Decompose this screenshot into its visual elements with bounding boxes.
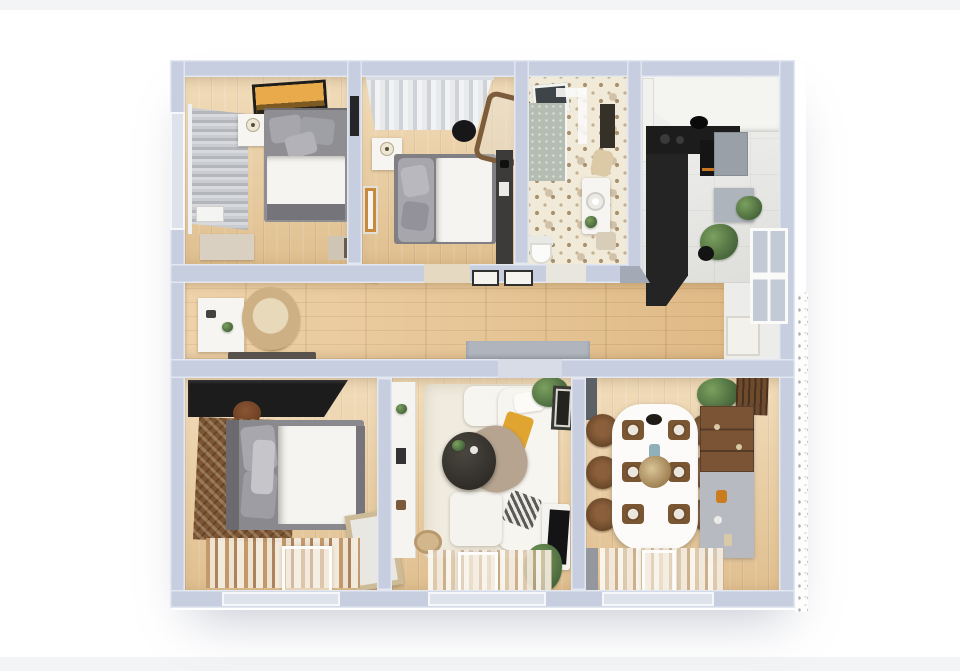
sofa-ottoman [450, 492, 502, 546]
bed-duvet [278, 426, 356, 524]
cooking-pot [690, 116, 708, 129]
refrigerator [714, 132, 748, 176]
interior-wall-bathroom-left [514, 60, 529, 264]
decor-candle [714, 516, 722, 524]
place-setting [668, 462, 690, 482]
bottom-frame-band [0, 657, 960, 671]
hall-sideboard [198, 298, 244, 352]
wall-frame [472, 270, 499, 286]
dresser [200, 234, 254, 260]
bed-footer [267, 204, 345, 220]
round-coffee-table [442, 432, 496, 490]
window [750, 228, 788, 324]
black-pouf [452, 120, 476, 142]
window-left-wall [170, 112, 185, 230]
kitchen-counter-side [646, 154, 688, 306]
shelf-item [396, 500, 406, 510]
toilet [530, 243, 552, 264]
doorway [546, 264, 586, 283]
shower-glass-wall [578, 88, 587, 144]
table-lamp [246, 118, 260, 132]
exterior-wall-top [170, 60, 795, 77]
interior-wall-living-left [377, 378, 392, 590]
exterior-wall-right [779, 60, 795, 608]
entry-door [498, 359, 562, 378]
desk-paper [499, 182, 509, 196]
burner [676, 136, 684, 144]
interior-wall-kitchen-left [627, 60, 642, 283]
window-bottom-wall [602, 592, 714, 606]
black-wardrobe [188, 380, 348, 417]
window-bottom-wall [428, 592, 546, 606]
table-cup [470, 446, 478, 454]
drawer-knob [736, 444, 742, 450]
plant-pot [698, 246, 714, 261]
wall-edge [586, 548, 598, 590]
bed-headboard [226, 420, 239, 530]
place-setting [668, 504, 690, 524]
sideboard-drawers [700, 406, 754, 472]
wall-frame [504, 270, 533, 286]
sideboard-decor [206, 310, 216, 318]
gray-doormat [466, 341, 590, 360]
table-lamp [380, 142, 394, 156]
place-setting [668, 420, 690, 440]
doorway [424, 264, 470, 283]
top-frame-band [0, 0, 960, 10]
bed-duvet [267, 156, 345, 206]
bed-pillow [251, 439, 276, 494]
place-setting [622, 504, 644, 524]
bed-footer [356, 426, 365, 524]
textured-exterior-strip [795, 292, 808, 612]
curtain-rod [188, 104, 192, 234]
interior-wall-bedrooms [347, 60, 362, 264]
interior-wall-dining-left [571, 378, 586, 590]
bed-duvet [436, 158, 492, 242]
floor-plan-render [0, 0, 960, 671]
place-setting [622, 420, 644, 440]
bed-pillow [400, 164, 431, 198]
decor-jar [716, 490, 727, 503]
window-bottom-wall [222, 592, 340, 606]
sink [586, 192, 605, 211]
wall-tv [350, 96, 359, 136]
walk-in-shower [529, 103, 567, 181]
shelf-item [396, 448, 406, 464]
drawer-knob [714, 424, 720, 430]
desk-item [500, 160, 509, 168]
sheer-curtains [366, 80, 492, 130]
towel-rail [600, 104, 615, 148]
bed-pillow [400, 200, 430, 231]
burner [660, 134, 670, 144]
radiator [196, 206, 224, 222]
center-bowl [646, 414, 662, 425]
decor-vase [724, 534, 732, 546]
wall-frame [363, 186, 378, 234]
stool [596, 232, 616, 250]
interior-wall-hall-bottom [170, 359, 795, 378]
